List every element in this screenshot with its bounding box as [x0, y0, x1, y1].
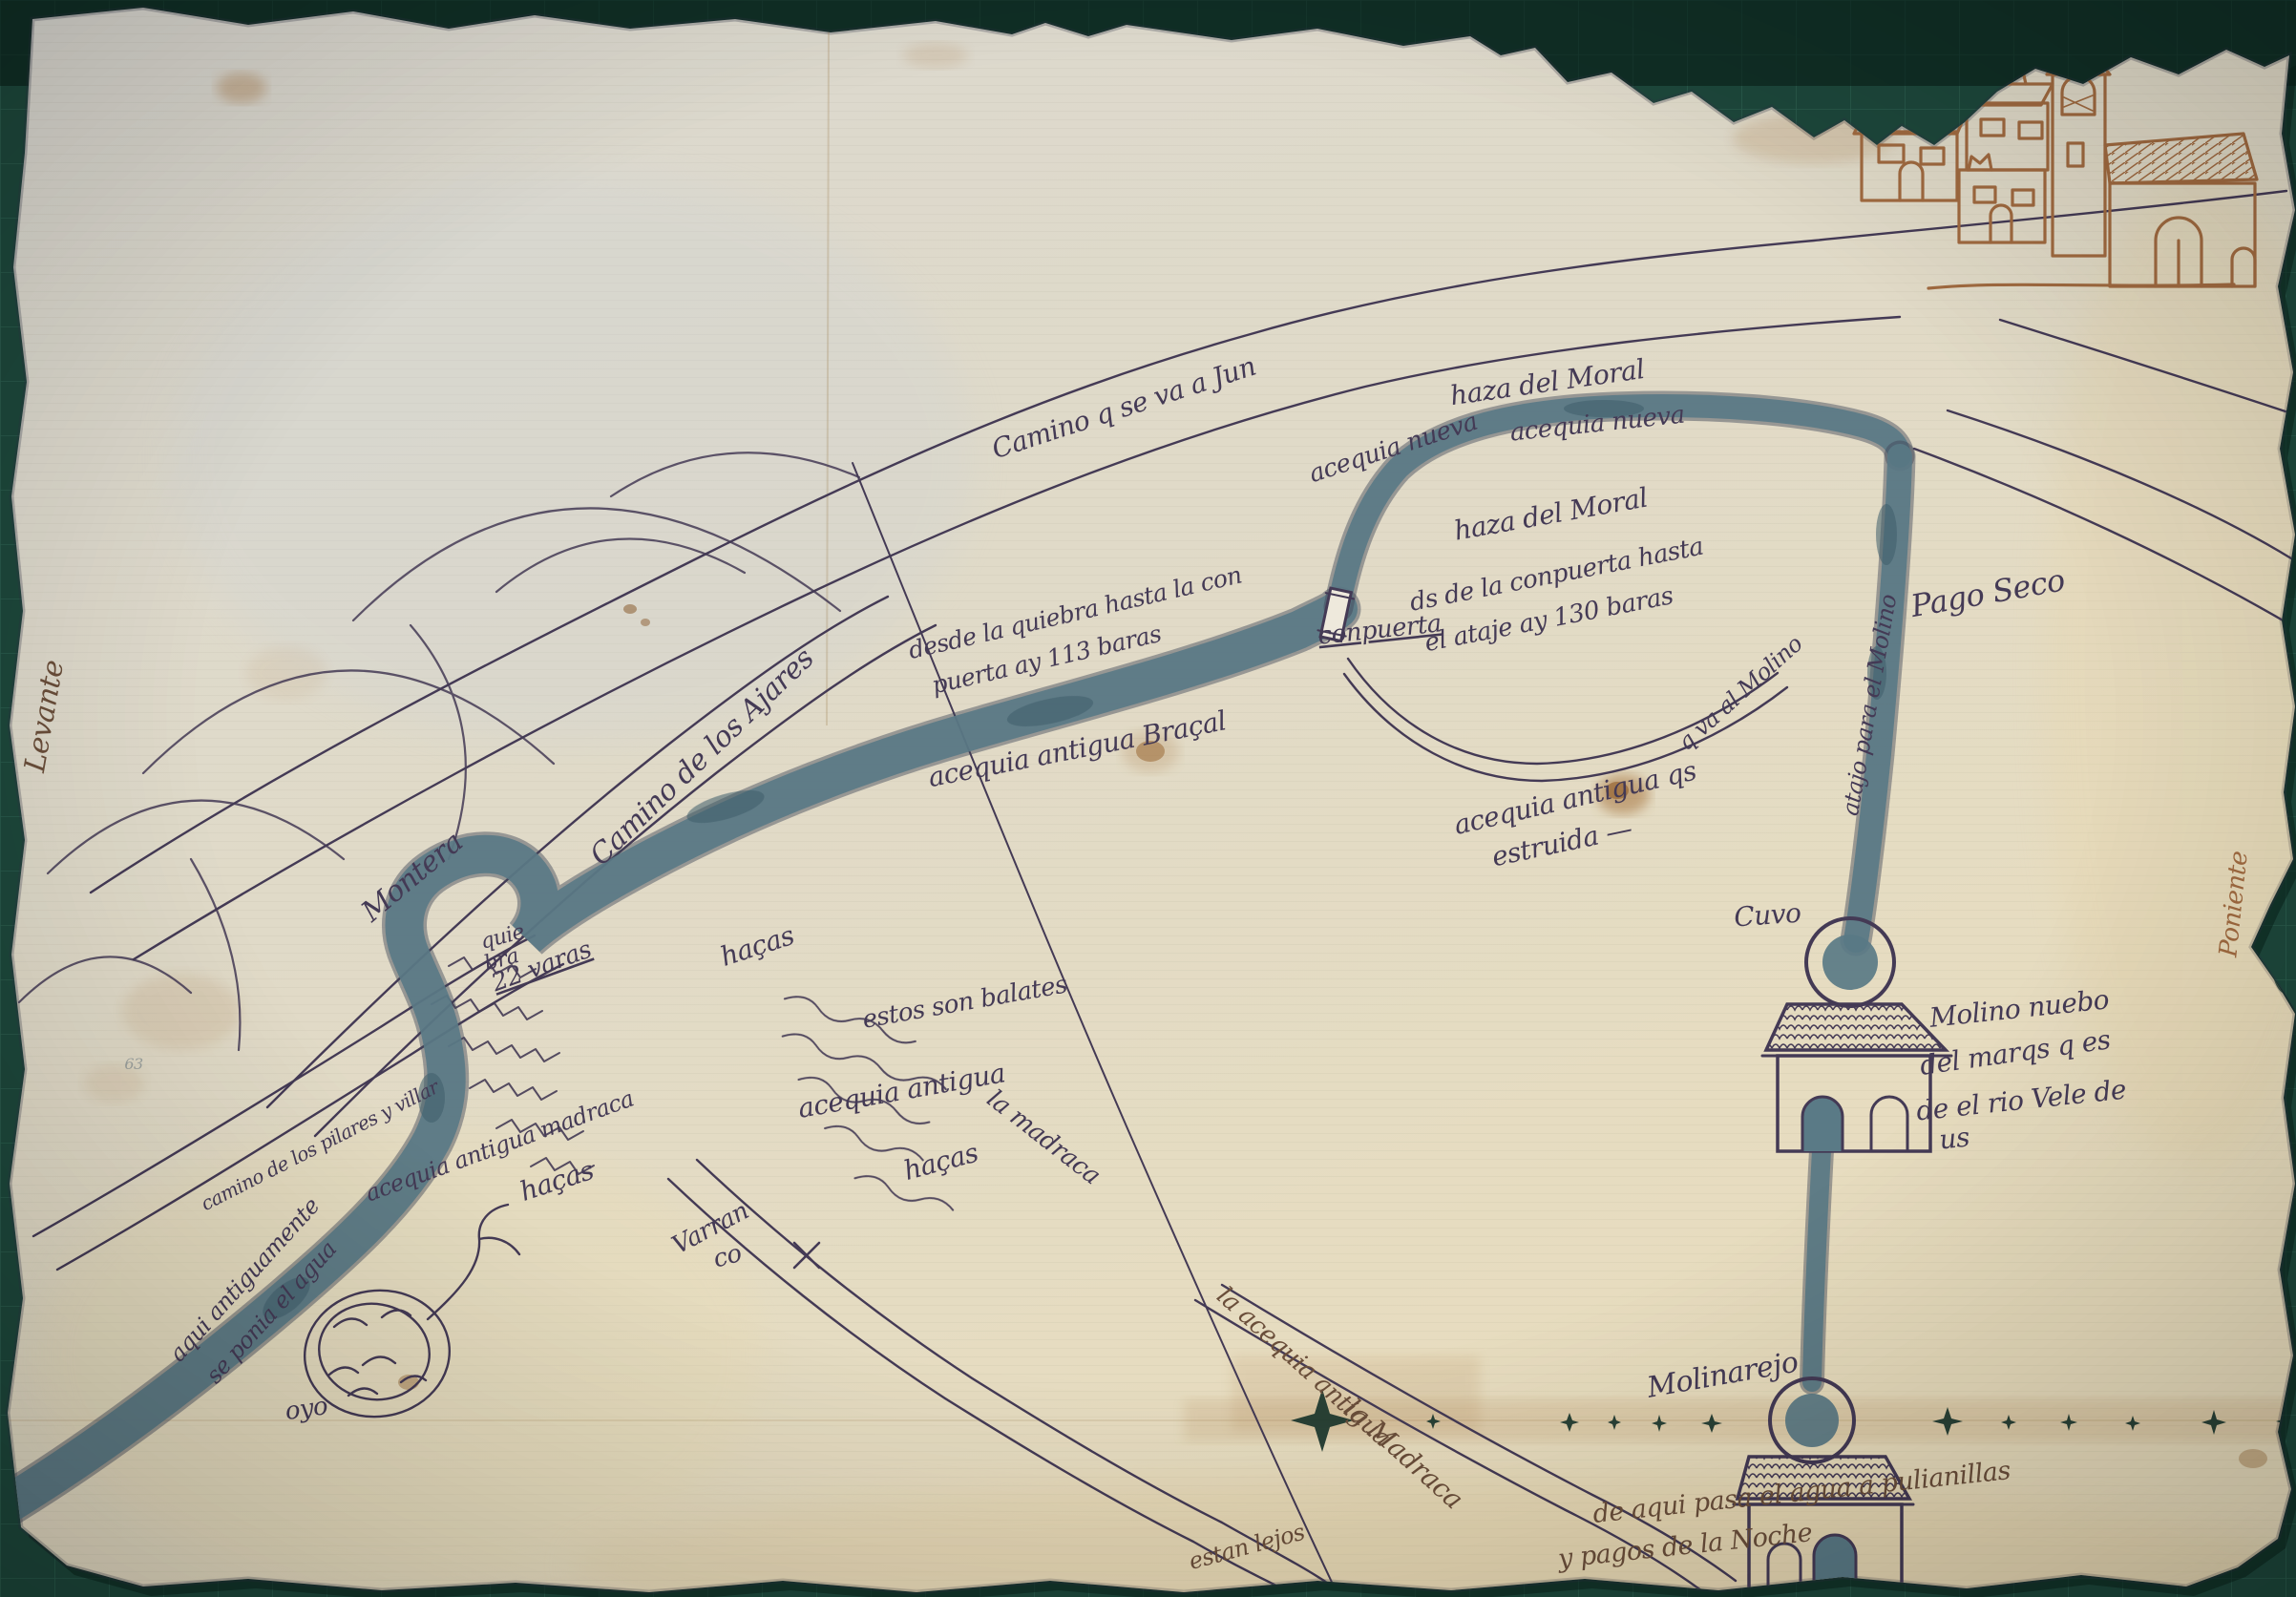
photo-of-manuscript-map: lugar de JatarCamino q se va a Junhaza d… — [0, 0, 2296, 1597]
map-canvas: lugar de JatarCamino q se va a Junhaza d… — [0, 0, 2296, 1597]
photo-vignette — [0, 0, 2296, 1597]
